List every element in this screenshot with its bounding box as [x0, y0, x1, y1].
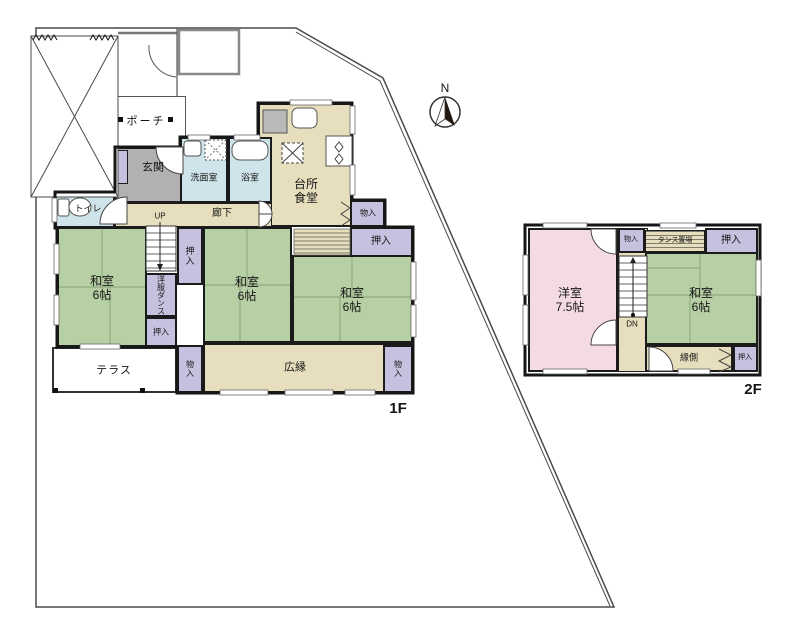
north-arrow-icon	[430, 97, 460, 127]
engawa-label: 縁側	[680, 353, 698, 364]
oshiire-2f-topright-label: 押入	[721, 235, 741, 247]
floor-plan-canvas: ポーチ 玄関 洗面室 浴室 台所 食堂 廊下 トイレ UP 和室 6帖 和室 6…	[0, 0, 800, 640]
break-mark-left	[33, 35, 57, 40]
monoire-2f-label: 物入	[624, 236, 638, 244]
floor2-label: 2F	[744, 381, 762, 399]
floor1-label: 1F	[389, 400, 407, 418]
monoire-1f-kitchen-label: 物入	[360, 208, 376, 217]
washitsu-1f-left-label: 和室 6帖	[90, 274, 114, 302]
stairs-dn-label: DN	[626, 319, 638, 328]
room-bathroom	[228, 137, 272, 203]
excluded-area-x-box	[31, 35, 118, 197]
monoire-1f-right-label: 物入	[393, 360, 404, 378]
oshiire-1f-small-label: 押入	[153, 327, 169, 336]
tansu-okiba-label: タンス置場	[658, 237, 693, 245]
bathroom-label: 浴室	[241, 173, 259, 184]
terrace-label: テラス	[96, 365, 132, 378]
room-kitchen-dining	[258, 103, 352, 227]
monoire-1f-left-label: 物入	[185, 360, 196, 378]
north-label: N	[441, 81, 450, 95]
washitsu-1f-right-label: 和室 6帖	[340, 286, 364, 314]
porch-label: ポーチ	[127, 116, 166, 129]
room-washroom	[180, 137, 228, 203]
hiroen-label: 広縁	[284, 362, 306, 375]
break-mark-right	[90, 35, 114, 40]
genkan-label: 玄関	[142, 162, 164, 175]
shed-box	[179, 30, 239, 74]
step-hatch-1f	[294, 229, 350, 255]
wardrobe-col1: 洋服	[156, 275, 167, 291]
gate-door-arc	[149, 45, 176, 77]
oshiire-2f-bottomright-label: 押入	[738, 354, 752, 362]
yoshitsu-2f-label: 洋室 7.5帖	[556, 286, 585, 314]
room-hiroen	[203, 343, 413, 393]
oshiire-1f-topright-label: 押入	[371, 236, 391, 248]
kitchen-dining-label: 台所 食堂	[294, 177, 318, 205]
oshiire-1f-stairs-label: 押入	[184, 246, 197, 266]
washitsu-2f-label: 和室 6帖	[689, 286, 713, 314]
washroom-label: 洗面室	[190, 173, 217, 184]
shoe-cabinet	[115, 150, 128, 184]
stairs-1f	[146, 222, 176, 271]
hallway-label: 廊下	[212, 208, 232, 220]
washitsu-1f-middle-label: 和室 6帖	[235, 275, 259, 303]
wardrobe-1f-label: 洋服 ダンス	[155, 275, 167, 315]
wardrobe-col2: ダンス	[156, 291, 167, 315]
toilet-label: トイレ	[74, 204, 101, 215]
stairs-up-label: UP	[154, 211, 165, 220]
room-hallway	[115, 203, 272, 227]
